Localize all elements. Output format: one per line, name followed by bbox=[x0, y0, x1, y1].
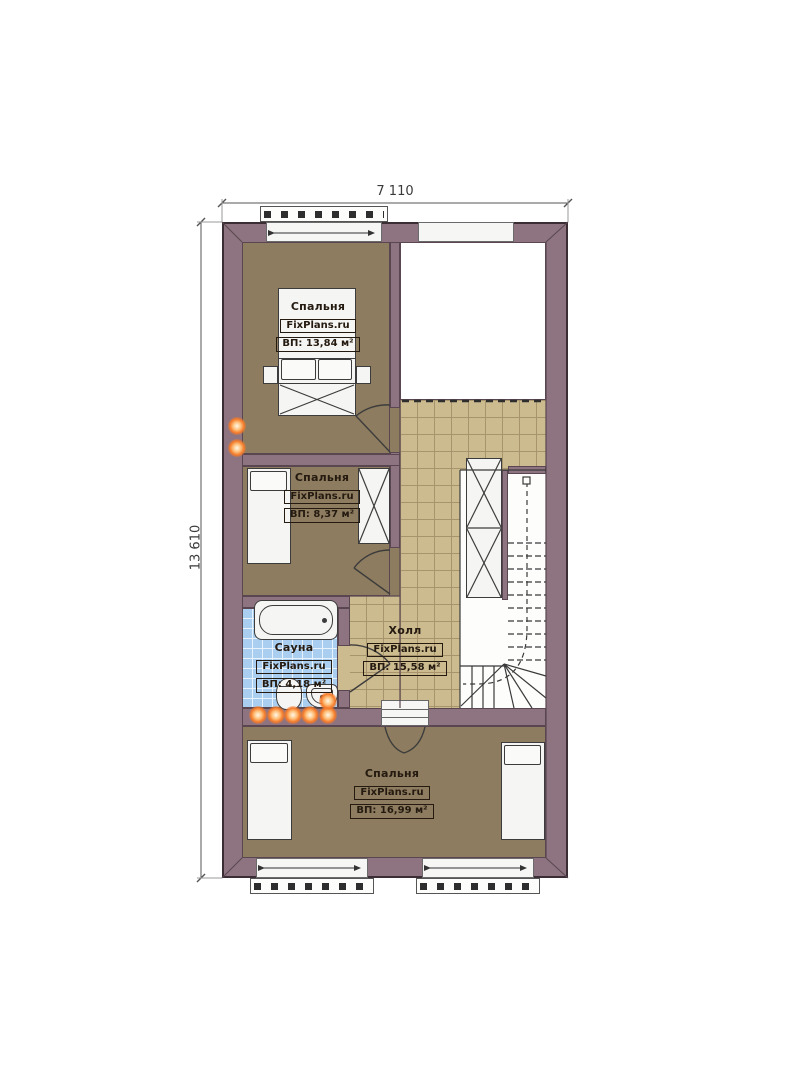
area-label: ВП: 8,37 м² bbox=[284, 508, 360, 523]
pillow bbox=[318, 359, 352, 380]
wall-bedroom-top-east-upper bbox=[390, 242, 400, 408]
ceiling-lamp bbox=[267, 706, 285, 724]
pillow bbox=[281, 359, 316, 380]
brand-label: FixPlans.ru bbox=[367, 643, 442, 658]
door-opening-bedroom-top bbox=[390, 408, 400, 452]
sink-lamp bbox=[319, 692, 337, 710]
wardrobe-stair-side bbox=[466, 458, 502, 598]
window-top-right bbox=[418, 222, 514, 242]
brand-label: FixPlans.ru bbox=[354, 786, 429, 801]
open-space-room bbox=[400, 242, 546, 400]
room-name: Спальня bbox=[340, 768, 444, 780]
wall-bedroom-bottom-north-right bbox=[426, 708, 546, 726]
brand-label: FixPlans.ru bbox=[256, 660, 331, 675]
room-name: Спальня bbox=[266, 301, 370, 313]
area-label: ВП: 4,18 м² bbox=[256, 678, 332, 693]
dimension-left-label: 13 610 bbox=[189, 498, 204, 598]
ceiling-lamp bbox=[249, 706, 267, 724]
single-bed-bottom-left bbox=[247, 740, 292, 840]
ceiling-lamp bbox=[301, 706, 319, 724]
balcony-railing-bottom-left bbox=[250, 878, 374, 894]
door-threshold bbox=[381, 700, 429, 726]
bed-line bbox=[279, 358, 355, 359]
area-label: ВП: 16,99 м² bbox=[350, 804, 433, 819]
brand-label: FixPlans.ru bbox=[284, 490, 359, 505]
room-name: Сауна bbox=[246, 642, 342, 654]
brand-label: FixPlans.ru bbox=[280, 319, 355, 334]
room-label-bedroom-middle: Спальня FixPlans.ru ВП: 8,37 м² bbox=[270, 472, 374, 523]
area-label: ВП: 13,84 м² bbox=[276, 337, 359, 352]
bathtub bbox=[254, 600, 338, 640]
room-label-hall: Холл FixPlans.ru ВП: 15,58 м² bbox=[357, 625, 453, 676]
room-name: Спальня bbox=[270, 472, 374, 484]
single-bed-bottom-right bbox=[501, 742, 545, 840]
bed-foot-line bbox=[279, 383, 355, 384]
pillow bbox=[504, 745, 541, 765]
railing-balusters bbox=[254, 883, 370, 890]
wall-lamp bbox=[228, 417, 246, 435]
balcony-railing-top bbox=[260, 206, 388, 222]
window-bottom-left bbox=[256, 858, 368, 878]
ceiling-lamp bbox=[284, 706, 302, 724]
wall-stair-partition bbox=[502, 470, 508, 600]
window-bottom-right bbox=[422, 858, 534, 878]
room-name: Холл bbox=[357, 625, 453, 637]
floorplan-canvas: 7 110 13 610 Спальня FixPlans.ru ВП: 13,… bbox=[0, 0, 792, 1080]
window-top-left bbox=[266, 222, 382, 242]
room-label-bedroom-bottom: Спальня FixPlans.ru ВП: 16,99 м² bbox=[340, 768, 444, 819]
nightstand-right bbox=[356, 366, 371, 384]
wall-sauna-east-upper bbox=[338, 608, 350, 646]
wall-lamp bbox=[228, 439, 246, 457]
nightstand-left bbox=[263, 366, 278, 384]
area-label: ВП: 15,58 м² bbox=[363, 661, 446, 676]
dimension-top-label: 7 110 bbox=[345, 184, 445, 199]
wall-bedrooms-divider bbox=[242, 454, 400, 466]
room-label-bedroom-top: Спальня FixPlans.ru ВП: 13,84 м² bbox=[266, 301, 370, 352]
railing-balusters bbox=[420, 883, 536, 890]
bathtub-drain bbox=[322, 618, 327, 623]
balcony-railing-bottom-right bbox=[416, 878, 540, 894]
railing-balusters bbox=[264, 211, 384, 218]
pillow bbox=[250, 743, 288, 763]
room-label-sauna: Сауна FixPlans.ru ВП: 4,18 м² bbox=[246, 642, 342, 693]
wall-bedroom-middle-east bbox=[390, 452, 400, 548]
wall-sauna-east-lower bbox=[338, 690, 350, 708]
wall-stair-top bbox=[508, 466, 546, 474]
threshold-line bbox=[382, 717, 428, 718]
door-opening-bedroom-middle bbox=[390, 548, 400, 596]
threshold-line bbox=[382, 709, 428, 710]
